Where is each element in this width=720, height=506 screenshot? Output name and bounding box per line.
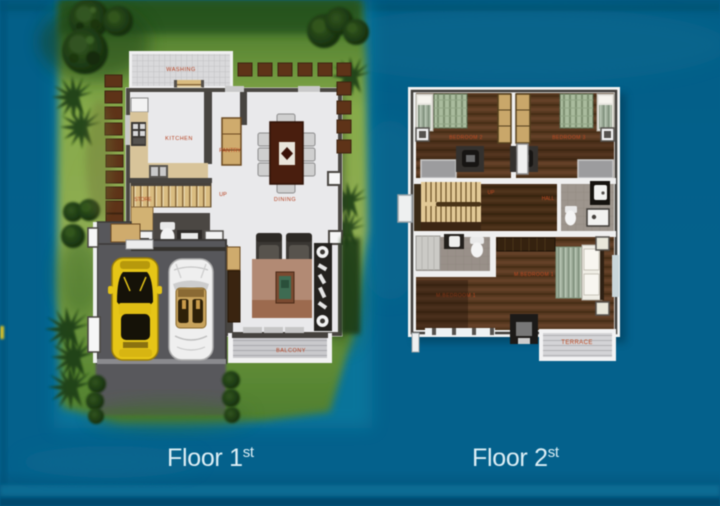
svg-text:WASHING: WASHING <box>166 67 196 73</box>
svg-text:TERRACE: TERRACE <box>561 340 592 346</box>
svg-text:Floor 1st: Floor 1st <box>167 444 255 472</box>
svg-text:STORE: STORE <box>134 197 152 203</box>
svg-text:Floor 2st: Floor 2st <box>472 444 560 472</box>
svg-text:BEDROOM 2: BEDROOM 2 <box>449 135 483 141</box>
svg-text:UP: UP <box>219 192 227 198</box>
svg-text:HALL: HALL <box>542 196 555 202</box>
svg-text:DINING: DINING <box>274 197 296 203</box>
svg-text:BEDROOM 3: BEDROOM 3 <box>552 135 586 141</box>
svg-text:UP: UP <box>488 190 496 196</box>
svg-text:M.BEDROOM 1: M.BEDROOM 1 <box>514 272 554 278</box>
svg-text:PANTRY: PANTRY <box>219 148 241 154</box>
svg-text:BALCONY: BALCONY <box>276 348 306 354</box>
svg-text:KITCHEN: KITCHEN <box>165 136 193 142</box>
